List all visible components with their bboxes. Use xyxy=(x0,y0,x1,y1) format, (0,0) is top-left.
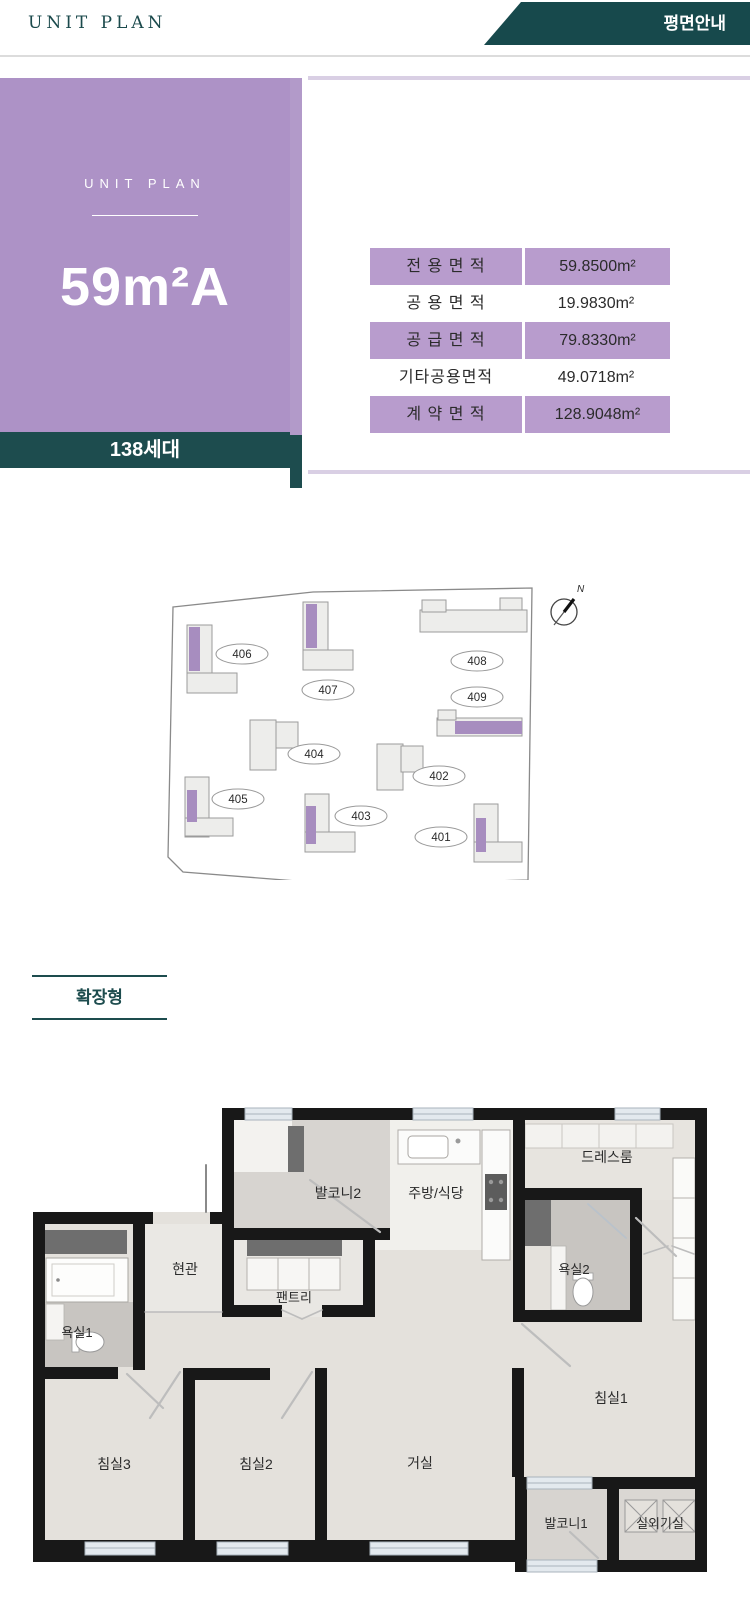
accent-vertical-line-teal xyxy=(290,435,302,488)
unit-card-eyebrow: UNIT PLAN xyxy=(0,176,290,191)
building-no: 401 xyxy=(431,832,450,844)
compass-label: N xyxy=(577,584,585,595)
area-value: 79.8330m² xyxy=(522,322,670,359)
area-value: 19.9830m² xyxy=(522,285,670,322)
area-table: 전 용 면 적 59.8500m² 공 용 면 적 19.9830m² 공 급 … xyxy=(370,248,670,433)
accent-vertical-line-purple xyxy=(290,78,302,435)
table-row: 기타공용면적 49.0718m² xyxy=(370,359,670,396)
area-label: 공 용 면 적 xyxy=(370,285,522,322)
table-row: 공 용 면 적 19.9830m² xyxy=(370,285,670,322)
building-no: 403 xyxy=(351,811,370,823)
brand-title: UNIT PLAN xyxy=(28,13,167,33)
area-label: 계 약 면 적 xyxy=(370,396,522,433)
room-label-ac-room: 실외기실 xyxy=(636,1516,684,1531)
building-no: 402 xyxy=(429,771,448,783)
panel-top-rule xyxy=(308,76,750,80)
area-label: 공 급 면 적 xyxy=(370,322,522,359)
building-no: 407 xyxy=(318,685,337,697)
area-value: 59.8500m² xyxy=(522,248,670,285)
room-label-bath2: 욕실2 xyxy=(558,1262,589,1277)
unit-card: UNIT PLAN 59m²A xyxy=(0,78,290,432)
units-count-badge: 138세대 xyxy=(0,432,290,468)
room-label-balcony1: 발코니1 xyxy=(544,1516,587,1531)
room-label-dressroom: 드레스룸 xyxy=(581,1149,633,1165)
building-no: 409 xyxy=(467,692,486,704)
page-tab-banner: 평면안내 xyxy=(484,2,750,45)
table-row: 공 급 면 적 79.8330m² xyxy=(370,322,670,359)
area-value: 49.0718m² xyxy=(522,359,670,396)
room-label-bedroom1: 침실1 xyxy=(594,1390,628,1406)
panel-bottom-rule xyxy=(308,470,750,474)
area-label: 전 용 면 적 xyxy=(370,248,522,285)
banner-label: 평면안내 xyxy=(663,2,726,45)
room-label-kitchen: 주방/식당 xyxy=(408,1185,464,1201)
page-header: UNIT PLAN 평면안내 xyxy=(0,0,750,57)
room-balcony2 xyxy=(234,1120,390,1230)
room-label-balcony2: 발코니2 xyxy=(315,1185,362,1201)
floor-plan: 발코니2 주방/식당 드레스룸 현관 팬트리 욕실2 욕실1 침실1 침실3 침… xyxy=(30,1080,710,1612)
building-no: 408 xyxy=(467,656,486,668)
unit-name: 59m²A xyxy=(0,256,290,318)
room-label-entrance: 현관 xyxy=(172,1261,198,1277)
room-label-pantry: 팬트리 xyxy=(276,1290,312,1305)
site-plan: N xyxy=(150,570,590,880)
building-no: 404 xyxy=(304,749,324,761)
unit-card-divider xyxy=(92,215,198,216)
room-label-bedroom3: 침실3 xyxy=(97,1456,131,1472)
area-label: 기타공용면적 xyxy=(370,359,522,396)
room-label-living: 거실 xyxy=(407,1455,433,1471)
plan-type-tab[interactable]: 확장형 xyxy=(32,975,167,1020)
building-no: 405 xyxy=(228,794,247,806)
table-row: 전 용 면 적 59.8500m² xyxy=(370,248,670,285)
room-bath1 xyxy=(45,1230,133,1367)
table-row: 계 약 면 적 128.9048m² xyxy=(370,396,670,433)
compass-icon: N xyxy=(551,584,585,625)
area-value: 128.9048m² xyxy=(522,396,670,433)
room-label-bath1: 욕실1 xyxy=(61,1325,92,1340)
room-label-bedroom2: 침실2 xyxy=(239,1456,273,1472)
building-no: 406 xyxy=(232,649,251,661)
